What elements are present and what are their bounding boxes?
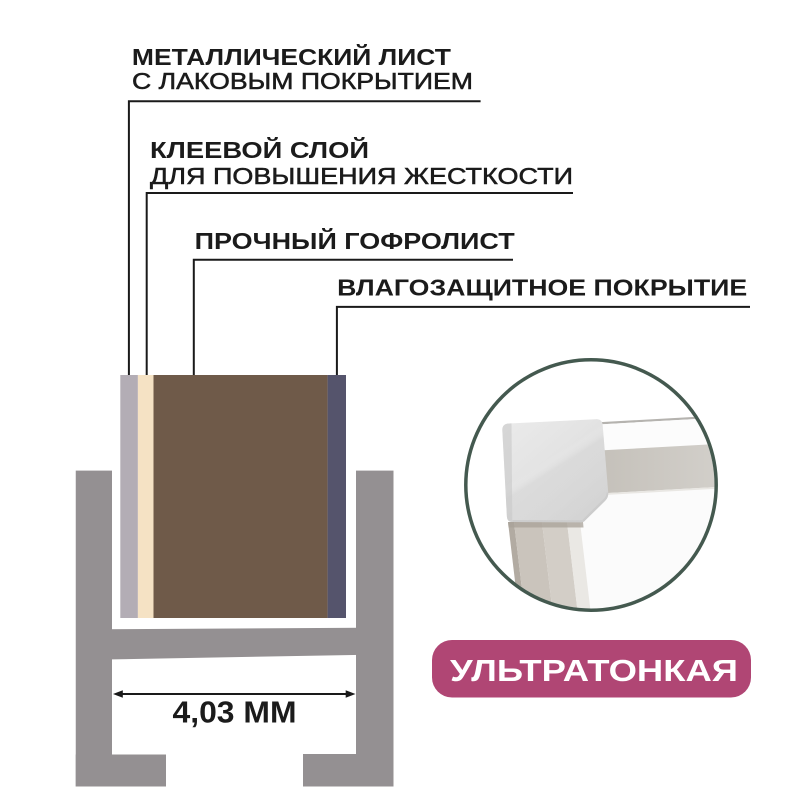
svg-text:УЛЬТРАТОНКАЯ: УЛЬТРАТОНКАЯ [450,653,738,688]
svg-text:ПРОЧНЫЙ ГОФРОЛИСТ: ПРОЧНЫЙ ГОФРОЛИСТ [195,227,516,254]
svg-text:ВЛАГОЗАЩИТНОЕ ПОКРЫТИЕ: ВЛАГОЗАЩИТНОЕ ПОКРЫТИЕ [337,275,747,301]
svg-text:ДЛЯ ПОВЫШЕНИЯ ЖЕСТКОСТИ: ДЛЯ ПОВЫШЕНИЯ ЖЕСТКОСТИ [150,163,573,189]
svg-text:С ЛАКОВЫМ ПОКРЫТИЕМ: С ЛАКОВЫМ ПОКРЫТИЕМ [132,68,473,94]
svg-text:4,03 ММ: 4,03 ММ [173,696,297,730]
svg-text:МЕТАЛЛИЧЕСКИЙ ЛИСТ: МЕТАЛЛИЧЕСКИЙ ЛИСТ [132,43,452,70]
svg-text:КЛЕЕВОЙ СЛОЙ: КЛЕЕВОЙ СЛОЙ [150,136,369,163]
